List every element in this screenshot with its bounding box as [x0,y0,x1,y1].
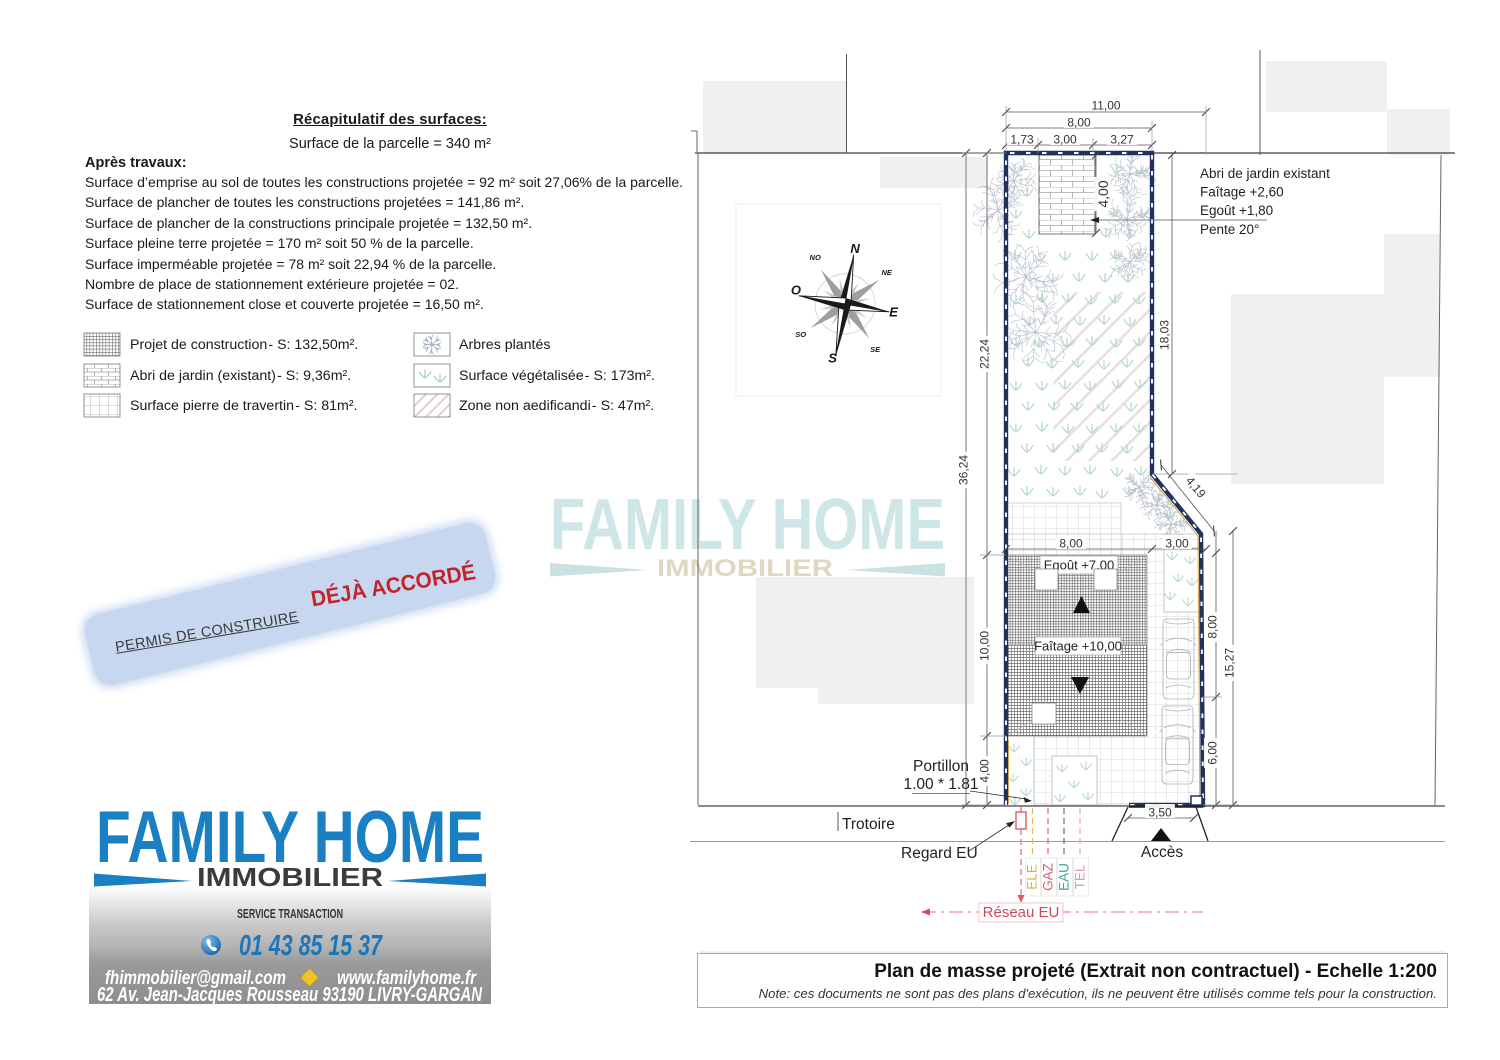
svg-text:IMMOBILIER: IMMOBILIER [197,862,383,892]
svg-text:62 Av. Jean-Jacques Rousseau 9: 62 Av. Jean-Jacques Rousseau 93190 LIVRY… [97,984,482,1004]
svg-text:Projet de construction - S: 13: Projet de construction - S: 132,50m². [130,337,358,353]
svg-text:SERVICE TRANSACTION: SERVICE TRANSACTION [237,906,343,921]
svg-text:01 43 85 15 37: 01 43 85 15 37 [239,930,383,962]
svg-text:Abri de jardin (existant) - S:: Abri de jardin (existant) - S: 9,36m². [130,368,351,384]
svg-text:Arbres plantés: Arbres plantés [459,337,550,353]
svg-text:Zone non aedificandi - S: 47m²: Zone non aedificandi - S: 47m². [459,398,654,414]
svg-text:Surface pierre de travertin -: Surface pierre de travertin - S: 81m². [130,398,358,414]
svg-text:Surface végétalisée - S: 173m²: Surface végétalisée - S: 173m². [459,368,655,384]
